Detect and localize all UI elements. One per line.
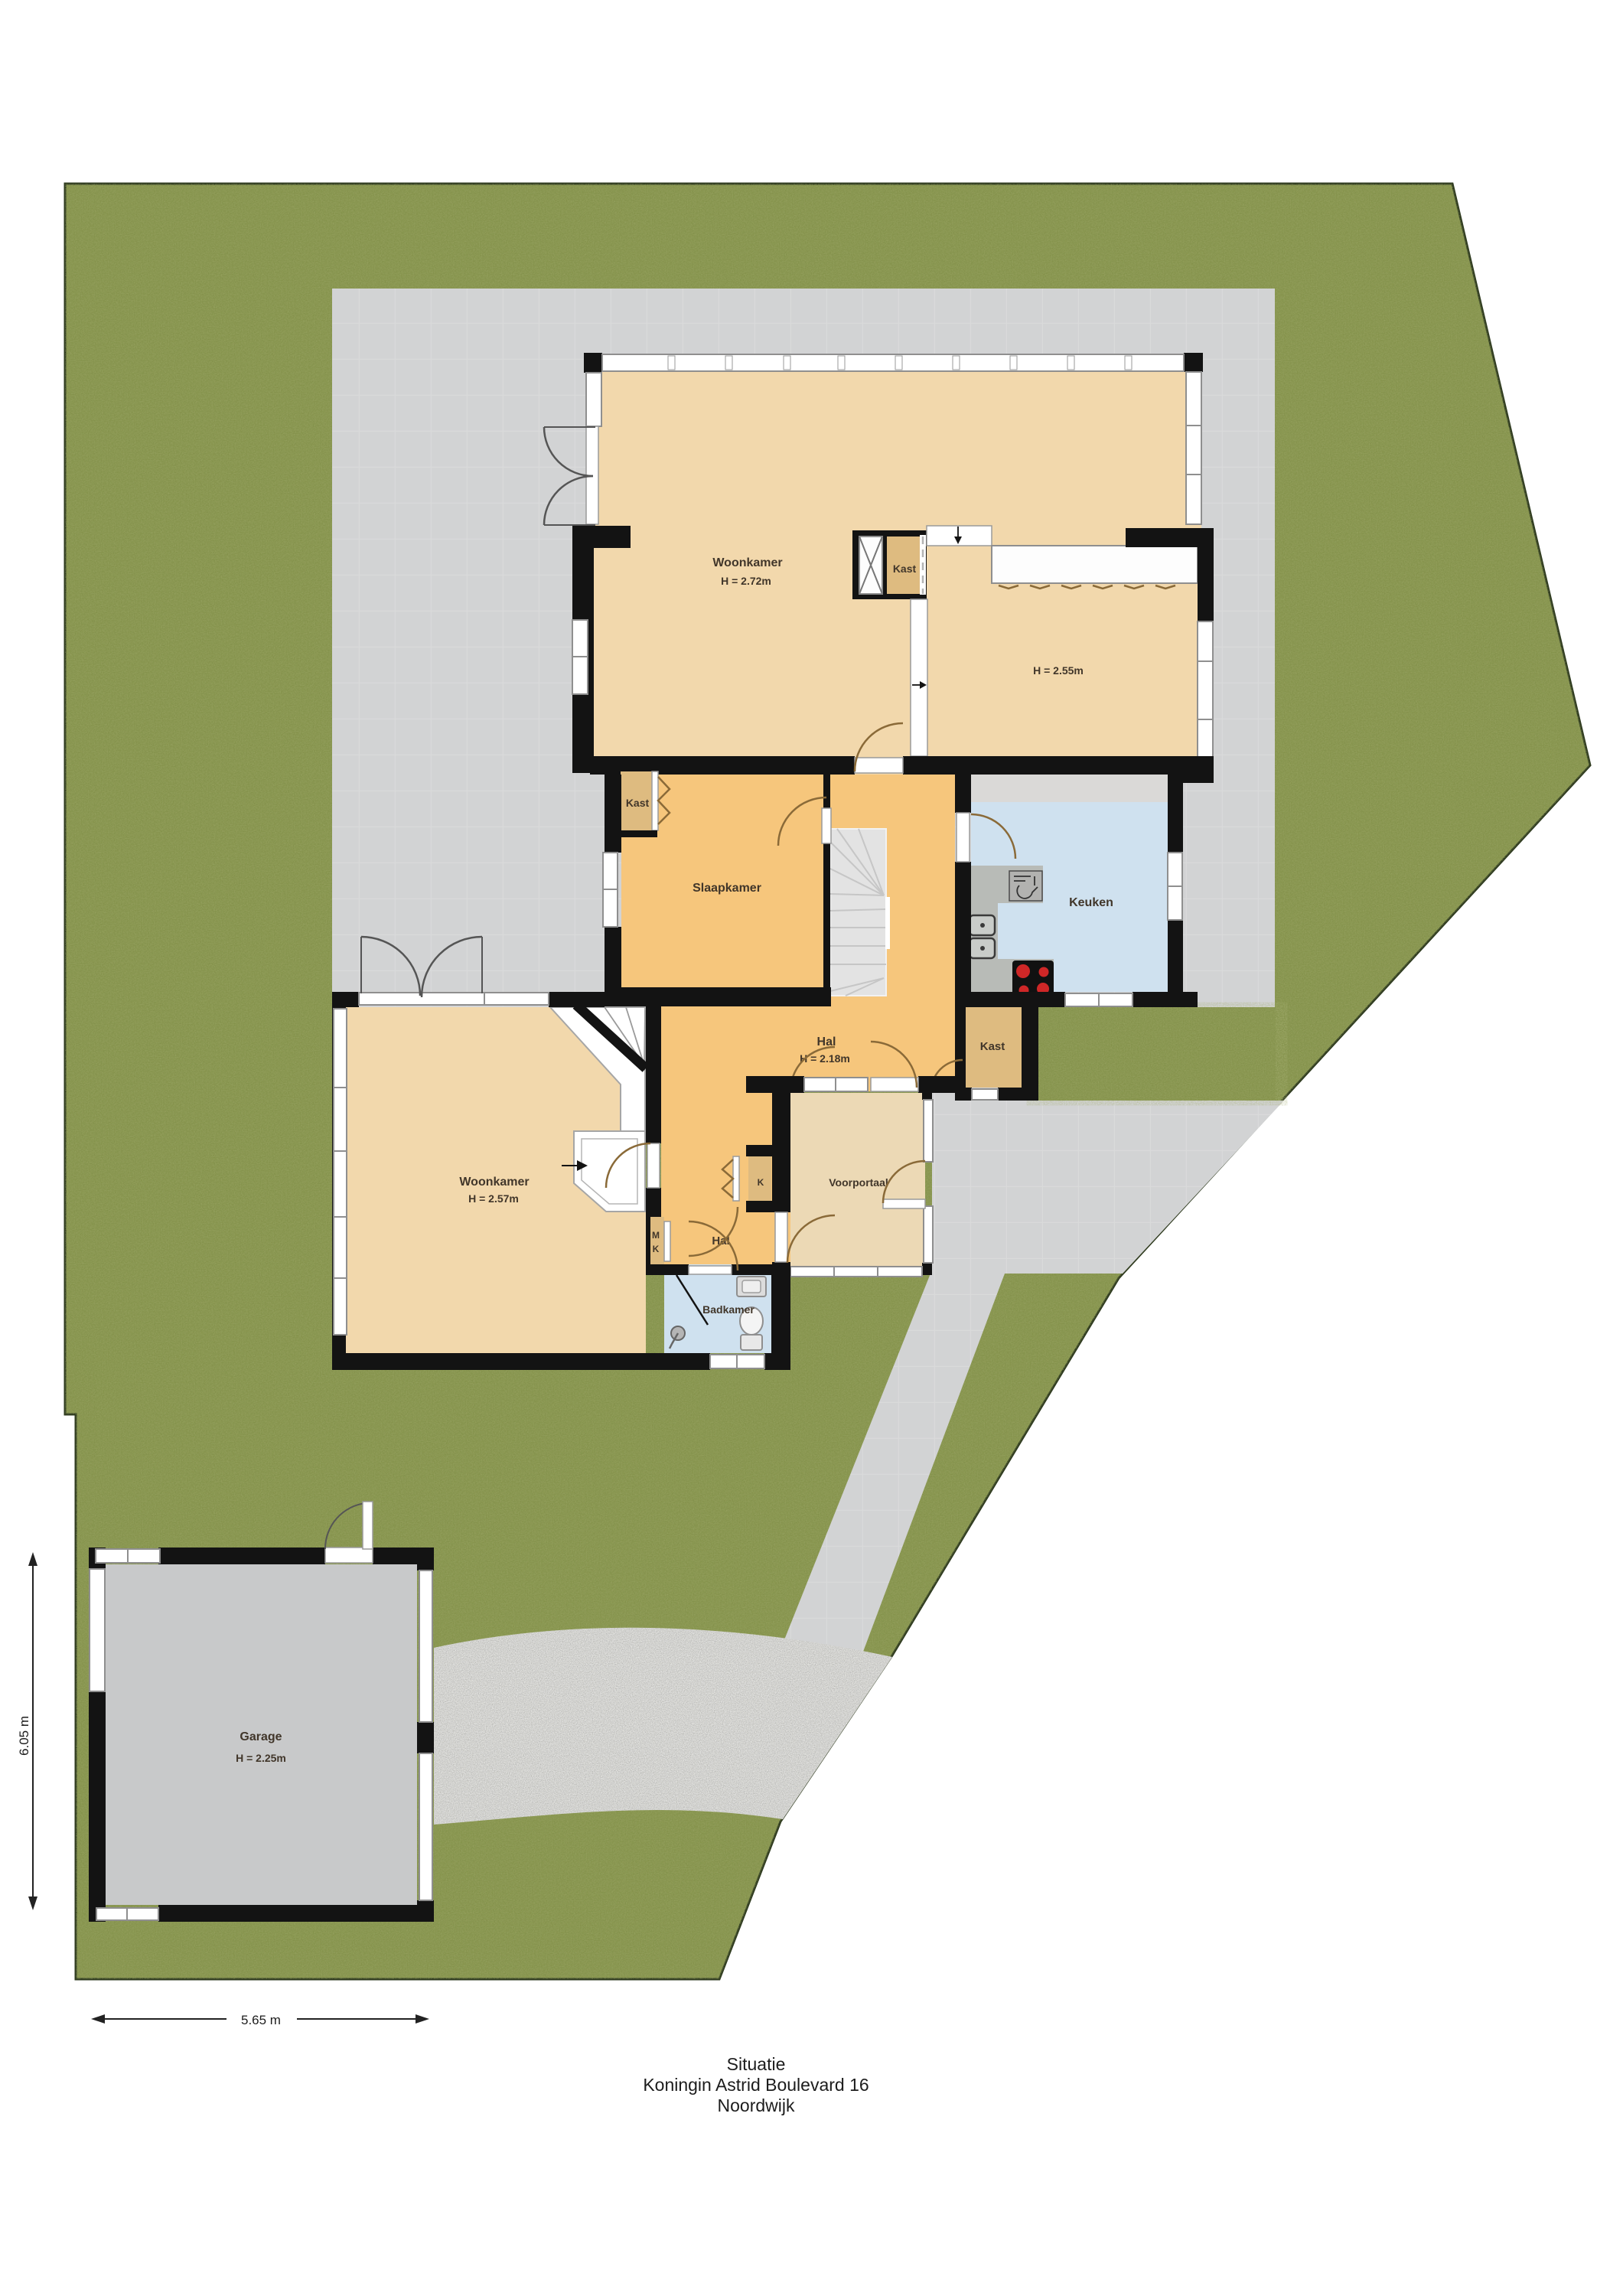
svg-text:5.65 m: 5.65 m: [241, 2013, 281, 2027]
svg-text:H = 2.72m: H = 2.72m: [721, 575, 771, 587]
svg-text:H = 2.25m: H = 2.25m: [236, 1752, 286, 1764]
svg-text:Slaapkamer: Slaapkamer: [693, 882, 761, 895]
svg-text:Woonkamer: Woonkamer: [459, 1176, 529, 1189]
svg-text:H = 2.57m: H = 2.57m: [468, 1192, 519, 1205]
svg-text:Keuken: Keuken: [1069, 896, 1113, 909]
svg-text:Kast: Kast: [980, 1040, 1005, 1053]
svg-text:H = 2.55m: H = 2.55m: [1033, 664, 1084, 677]
svg-text:K: K: [758, 1177, 764, 1188]
svg-text:6.05 m: 6.05 m: [17, 1716, 31, 1756]
svg-text:Noordwijk: Noordwijk: [718, 2095, 795, 2115]
svg-text:Garage: Garage: [240, 1730, 282, 1743]
svg-text:K: K: [653, 1244, 660, 1254]
svg-text:Situatie: Situatie: [727, 2054, 786, 2074]
svg-text:Voorportaal: Voorportaal: [829, 1176, 888, 1189]
svg-text:Kast: Kast: [893, 563, 917, 575]
svg-text:Koningin Astrid Boulevard 16: Koningin Astrid Boulevard 16: [643, 2075, 869, 2095]
svg-text:Kast: Kast: [626, 797, 650, 809]
svg-text:H = 2.18m: H = 2.18m: [800, 1052, 850, 1065]
svg-text:M: M: [652, 1230, 660, 1241]
svg-text:Woonkamer: Woonkamer: [712, 556, 782, 569]
svg-text:Badkamer: Badkamer: [702, 1303, 754, 1316]
